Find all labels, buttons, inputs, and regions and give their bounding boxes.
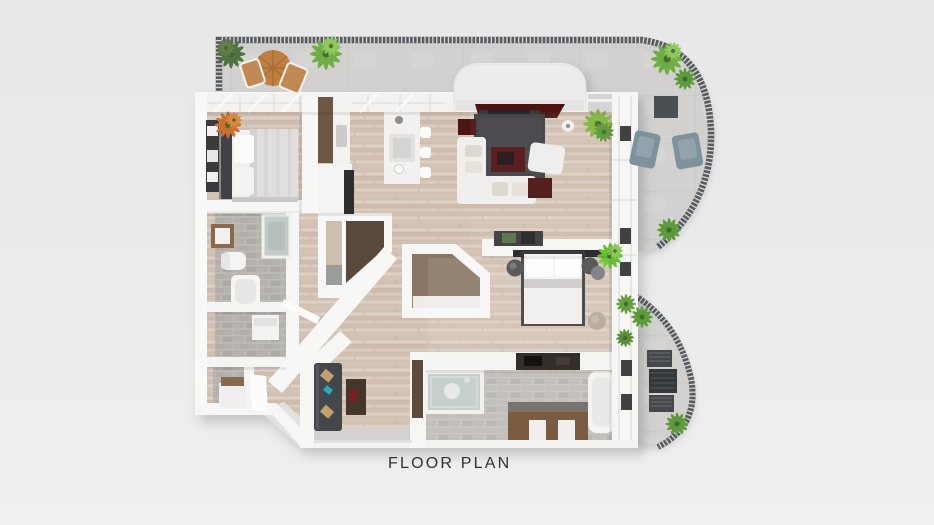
svg-text:FLOOR PLAN: FLOOR PLAN bbox=[388, 455, 511, 472]
